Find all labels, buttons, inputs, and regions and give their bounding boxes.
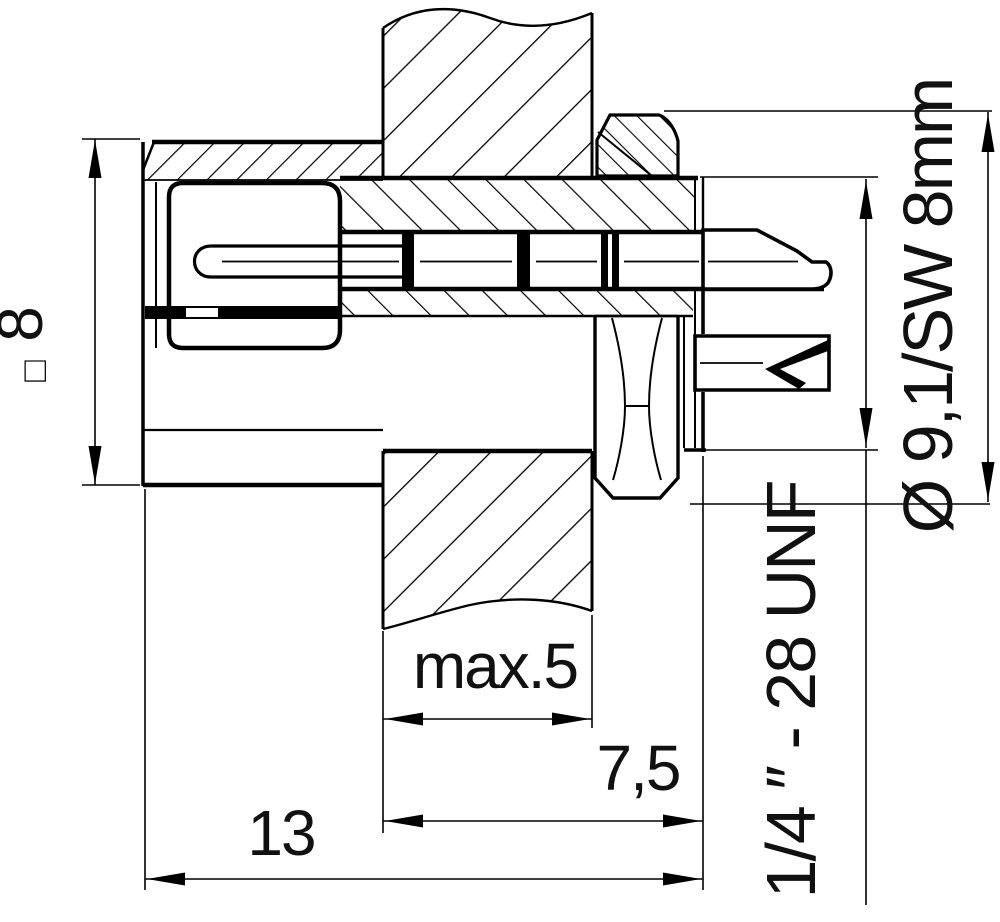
arrow-left-icon [147, 873, 185, 886]
arrow-up-icon [982, 114, 995, 152]
solder-lug-lower [695, 336, 829, 390]
arrow-up-icon [860, 181, 873, 219]
arrow-right-icon [663, 815, 701, 828]
arrow-down-icon [860, 408, 873, 446]
arrow-right-icon [663, 873, 701, 886]
solder-lug-upper [703, 230, 831, 289]
insert-seam-slot [145, 306, 338, 319]
arrow-up-icon [89, 140, 102, 178]
label-body-size-value: 8 [0, 308, 56, 342]
panel-bottom-section [383, 451, 592, 629]
arrow-left-icon [385, 815, 423, 828]
label-thread-note: 1/4 ″ - 28 UNF [752, 482, 830, 899]
arrow-right-icon [552, 713, 590, 726]
arrow-left-icon [385, 713, 423, 726]
label-total-length: 13 [247, 797, 314, 869]
label-panel-thickness: max.5 [413, 630, 577, 702]
label-flange-depth: 7,5 [597, 732, 680, 804]
body-cavity [145, 182, 340, 348]
dimension-square8 [82, 139, 140, 485]
panel-top-section [383, 9, 592, 176]
label-body-size-symbol: □ [13, 360, 54, 382]
technical-drawing: 8 □ Ø 9,1/SW 8mm 1/4 ″ - 28 UNF max.5 7,… [0, 0, 1000, 922]
drawing-page: 8 □ Ø 9,1/SW 8mm 1/4 ″ - 28 UNF max.5 7,… [0, 0, 1000, 922]
label-diameter-note: Ø 9,1/SW 8mm [889, 79, 967, 533]
arrow-down-icon [89, 446, 102, 484]
arrow-down-icon [982, 462, 995, 500]
